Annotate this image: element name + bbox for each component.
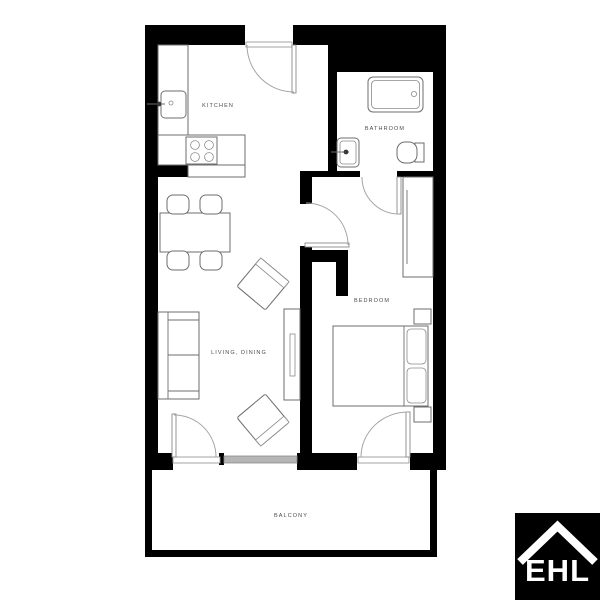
- bathtub-drain-icon: [411, 91, 416, 96]
- floorplan-drawing: [0, 0, 600, 600]
- wall-bathroom-bottom-right: [397, 171, 433, 177]
- dining-chair: [167, 251, 189, 270]
- living-balcony-door-arc: [174, 415, 216, 457]
- wall-balcony-right: [430, 470, 437, 557]
- wall-balcony-bottom: [145, 550, 437, 557]
- wall-niche-right: [336, 262, 348, 296]
- entry-door-sill: [246, 42, 292, 47]
- kitchen-counter-apron: [188, 165, 245, 177]
- room-label-kitchen: KITCHEN: [202, 103, 234, 109]
- bedroom-door-leaf: [305, 243, 349, 247]
- stove-burner-icon: [191, 153, 200, 162]
- dining-chair: [167, 195, 189, 214]
- bathroom-fixtures: [331, 77, 424, 167]
- nightstand-top: [414, 309, 431, 324]
- room-label-living-dining: LIVING, DINING: [211, 350, 267, 356]
- wall-bottom-seg1: [145, 453, 173, 470]
- dining-table: [160, 213, 230, 252]
- kitchen-faucet-knob-icon: [157, 102, 162, 107]
- dining-chair: [200, 195, 222, 214]
- kitchen-counter-left: [158, 45, 188, 135]
- nightstand-bottom: [414, 407, 431, 422]
- ehl-logo: EHL: [515, 513, 600, 600]
- kitchen-sink-drain-icon: [169, 101, 173, 105]
- pillow-icon: [407, 368, 426, 403]
- dining-chair: [200, 251, 222, 270]
- wall-living-bedroom: [300, 246, 312, 457]
- wall-hall-top: [300, 171, 360, 177]
- kitchen-sink: [161, 91, 186, 118]
- living-window: [224, 456, 297, 463]
- wall-niche-top: [312, 250, 348, 262]
- living-balcony-sill: [173, 457, 220, 463]
- stove-burner-icon: [205, 153, 214, 162]
- wall-right: [433, 25, 446, 470]
- wall-hall-west: [300, 177, 312, 204]
- bedroom-balcony-door-leaf: [406, 412, 410, 457]
- wall-top-left: [145, 25, 245, 45]
- toilet-bowl: [397, 142, 417, 163]
- bedroom-door-arc: [306, 203, 348, 245]
- wardrobe: [403, 177, 433, 277]
- bed: [333, 326, 428, 406]
- wall-top-right: [293, 25, 446, 45]
- entry-door-arc: [247, 45, 294, 92]
- bedroom-balcony-door-arc: [361, 412, 408, 457]
- living-dining-furniture: [158, 195, 300, 446]
- bathroom-faucet-knob-icon: [344, 150, 349, 155]
- wall-left: [145, 25, 158, 470]
- room-label-bedroom: BEDROOM: [354, 298, 390, 304]
- armchair-bottom: [237, 394, 289, 446]
- room-label-bathroom: BATHROOM: [365, 126, 405, 132]
- entry-door-leaf: [292, 45, 296, 93]
- wall-bottom-seg4: [410, 453, 437, 470]
- room-label-balcony: BALCONY: [274, 513, 308, 519]
- tv-sideboard: [284, 309, 300, 400]
- stove-burner-icon: [205, 141, 214, 150]
- wall-balcony-left: [145, 470, 152, 557]
- floorplan-canvas: KITCHEN BATHROOM BEDROOM LIVING, DINING …: [0, 0, 600, 600]
- armchair-top: [237, 258, 289, 310]
- bathroom-door-leaf: [397, 177, 401, 214]
- sofa: [158, 312, 199, 399]
- living-balcony-door-leaf: [172, 414, 176, 457]
- pillow-icon: [407, 329, 426, 364]
- stove-burner-icon: [191, 141, 200, 150]
- logo-text: EHL: [515, 555, 600, 586]
- bedroom-balcony-sill: [358, 457, 409, 463]
- tv-icon: [290, 334, 295, 376]
- wall-bottom-seg3: [297, 453, 357, 470]
- bathroom-door-arc: [362, 177, 399, 214]
- wall-bathroom-top: [337, 45, 433, 72]
- kitchen-fixtures: [147, 45, 245, 177]
